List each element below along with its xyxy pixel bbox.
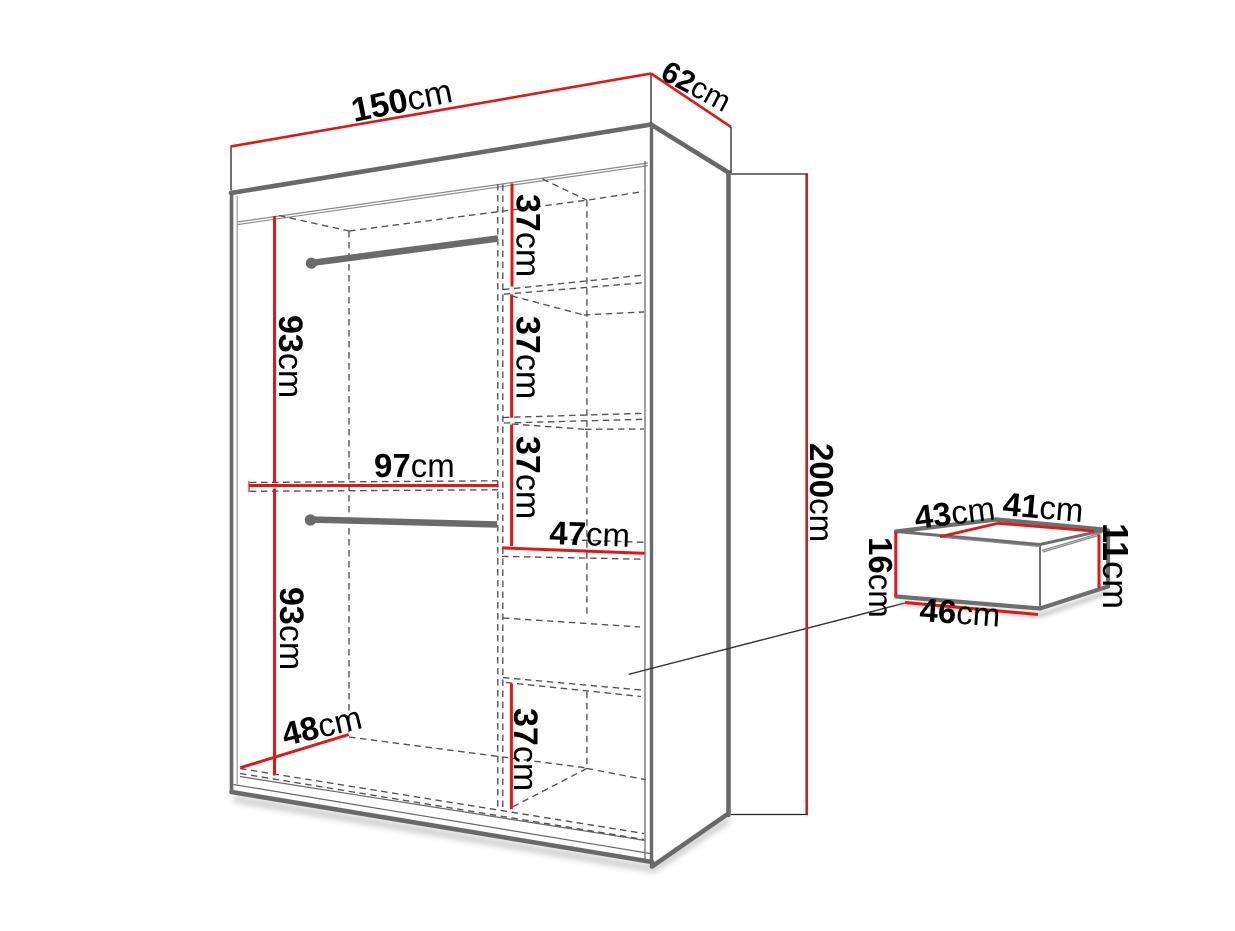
svg-text:37cm: 37cm [509,194,547,277]
svg-text:47cm: 47cm [549,514,631,554]
svg-text:93cm: 93cm [271,315,309,398]
svg-text:46cm: 46cm [919,591,1002,634]
svg-text:37cm: 37cm [509,316,547,399]
svg-text:93cm: 93cm [272,587,310,670]
svg-text:200cm: 200cm [803,443,840,542]
svg-text:16cm: 16cm [862,537,899,618]
svg-text:97cm: 97cm [374,447,455,484]
svg-text:37cm: 37cm [509,436,547,519]
svg-text:11cm: 11cm [1095,523,1136,609]
svg-text:41cm: 41cm [1001,485,1085,529]
svg-text:37cm: 37cm [506,708,544,791]
